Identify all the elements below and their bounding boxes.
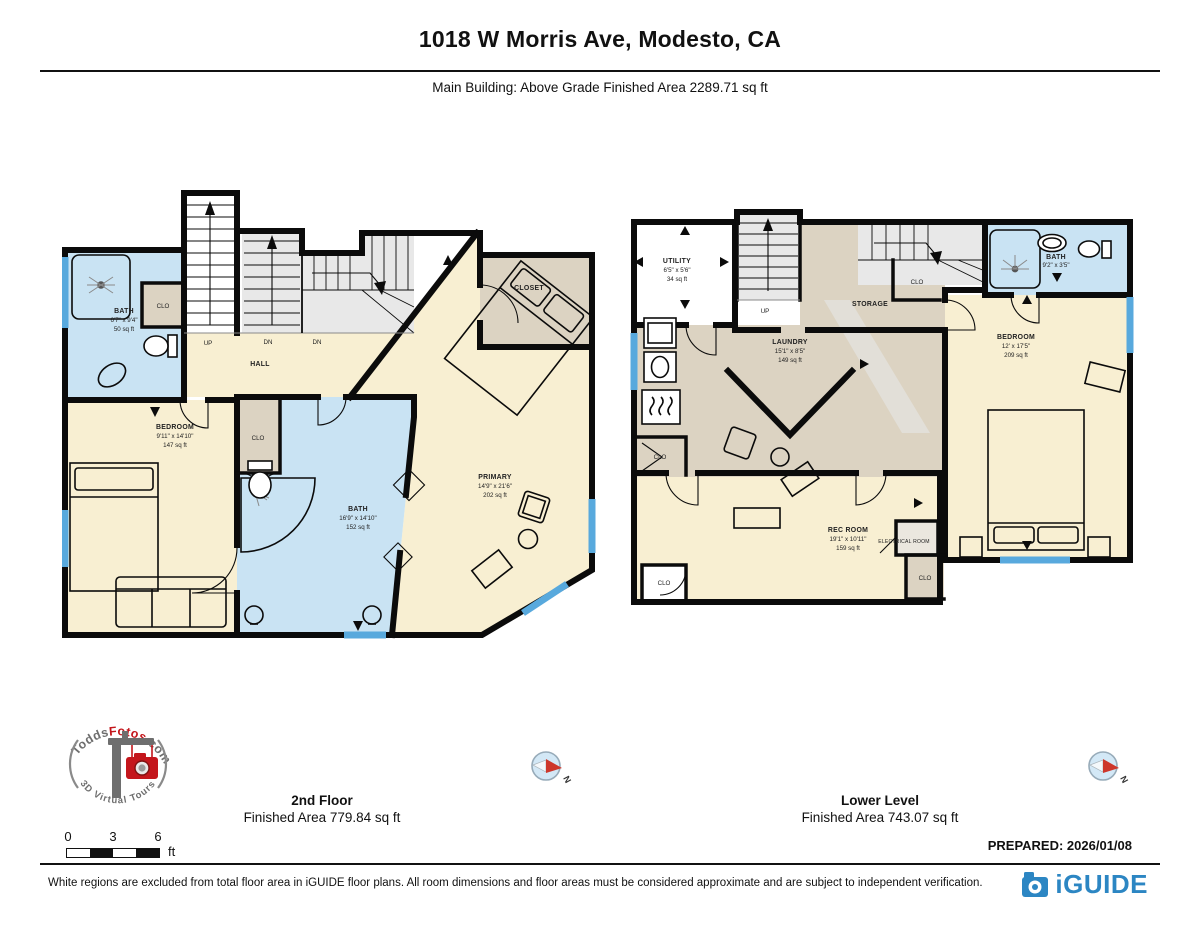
room-area: 202 sq ft (483, 492, 507, 499)
room-area: 50 sq ft (114, 326, 135, 333)
toilet-icon (1079, 241, 1112, 258)
toilet-icon (248, 461, 272, 498)
stairs-winder (858, 222, 985, 285)
scale-tick: 6 (148, 829, 168, 844)
room-dims: 15'1" x 8'5" (775, 348, 806, 355)
washer-icon (644, 352, 676, 382)
stair-label: UP (204, 340, 213, 347)
floor-area: Finished Area 743.07 sq ft (730, 809, 1030, 826)
room-label: PRIMARY (478, 474, 512, 481)
stairs-winder (302, 233, 414, 333)
door-arrow (443, 255, 453, 265)
room-dims: 9'2" x 3'5" (1042, 262, 1069, 269)
room-area: 209 sq ft (1004, 352, 1028, 359)
footer-divider (40, 863, 1160, 865)
room-label: REC ROOM (828, 527, 868, 534)
room-area: 34 sq ft (667, 276, 688, 283)
room-label: CLO (654, 454, 667, 461)
room-closet (480, 255, 592, 347)
stair-label: UP (761, 308, 770, 315)
prepared-date: PREPARED: 2026/01/08 (988, 838, 1132, 853)
svg-text:ToddsFotos.com: ToddsFotos.com (69, 724, 174, 766)
room-dims: 6'5" x 5'6" (663, 267, 690, 274)
toddsfotos-logo: ToddsFotos.com 3D Virtual Tours (56, 698, 180, 820)
room-label: CLO (919, 575, 932, 582)
room-label: BEDROOM (156, 424, 194, 431)
stair-label: DN (313, 339, 322, 346)
iguide-brand-text: iGUIDE (1055, 869, 1148, 900)
floor-caption-lower: Lower Level Finished Area 743.07 sq ft (730, 792, 1030, 826)
compass-north-label: N (561, 774, 573, 784)
compass-north-label: N (1118, 774, 1130, 784)
logo-text-part1: Todds (69, 725, 110, 757)
room-label: CLO (157, 303, 170, 310)
sink-icon (1038, 235, 1066, 252)
room-dims: 19'1" x 10'11" (830, 536, 867, 543)
room-dims: 9'11" x 14'10" (157, 433, 194, 440)
iguide-logo: iGUIDE (1020, 869, 1148, 900)
room-area: 159 sq ft (836, 545, 860, 552)
room-label: CLO (658, 580, 671, 587)
floorplan-lower-level: UTILITY 6'5" x 5'6" 34 sq ft UP STORAGE … (628, 205, 1140, 610)
room-label: CLOSET (514, 285, 544, 292)
room-dims: 14'9" x 21'6" (478, 483, 512, 490)
scale-bar: 0 3 6 ft (60, 829, 190, 861)
room-dims: 16'9" x 14'10" (339, 515, 376, 522)
room-label: ELECTRICAL ROOM (878, 539, 930, 545)
room-area: 152 sq ft (346, 524, 370, 531)
scale-unit: ft (168, 844, 175, 859)
room-label: BATH (348, 506, 368, 513)
scale-tick: 3 (103, 829, 123, 844)
room-label: UTILITY (663, 258, 691, 265)
stair-label: DN (264, 339, 273, 346)
floor-area: Finished Area 779.84 sq ft (172, 809, 472, 826)
laundry-tub-icon (644, 318, 676, 348)
compass-icon: N (1084, 746, 1132, 792)
room-label: HALL (250, 361, 270, 368)
room-label: BEDROOM (997, 334, 1035, 341)
water-heater-icon (642, 390, 680, 424)
page-subtitle: Main Building: Above Grade Finished Area… (0, 80, 1200, 95)
scale-tick: 0 (58, 829, 78, 844)
room-label: BATH (1046, 254, 1066, 261)
header-divider (40, 70, 1160, 72)
room-label: CLO (252, 435, 265, 442)
scale-bar-segments (66, 848, 160, 858)
room-label: BATH (114, 308, 134, 315)
toilet-icon (144, 335, 177, 357)
room-dims: 12' x 17'5" (1002, 343, 1030, 350)
floorplan-2nd-floor: BATH 6'7" x 9'4" 50 sq ft CLO UP DN DN H… (62, 185, 602, 645)
room-label: STORAGE (852, 301, 888, 308)
footer-disclaimer: White regions are excluded from total fl… (48, 877, 983, 889)
floor-name: Lower Level (730, 792, 1030, 809)
room-label: LAUNDRY (772, 339, 808, 346)
room-bedroom (945, 295, 1130, 560)
room-dims: 6'7" x 9'4" (110, 317, 137, 324)
room-label: CLO (911, 279, 924, 286)
iguide-camera-icon (1020, 871, 1050, 899)
room-area: 147 sq ft (163, 442, 187, 449)
floor-caption-2nd: 2nd Floor Finished Area 779.84 sq ft (172, 792, 472, 826)
room-area: 149 sq ft (778, 357, 802, 364)
page-title: 1018 W Morris Ave, Modesto, CA (0, 26, 1200, 53)
compass-icon: N (527, 746, 575, 792)
room-bedroom (65, 400, 237, 635)
floor-name: 2nd Floor (172, 792, 472, 809)
room-electrical (896, 521, 938, 555)
